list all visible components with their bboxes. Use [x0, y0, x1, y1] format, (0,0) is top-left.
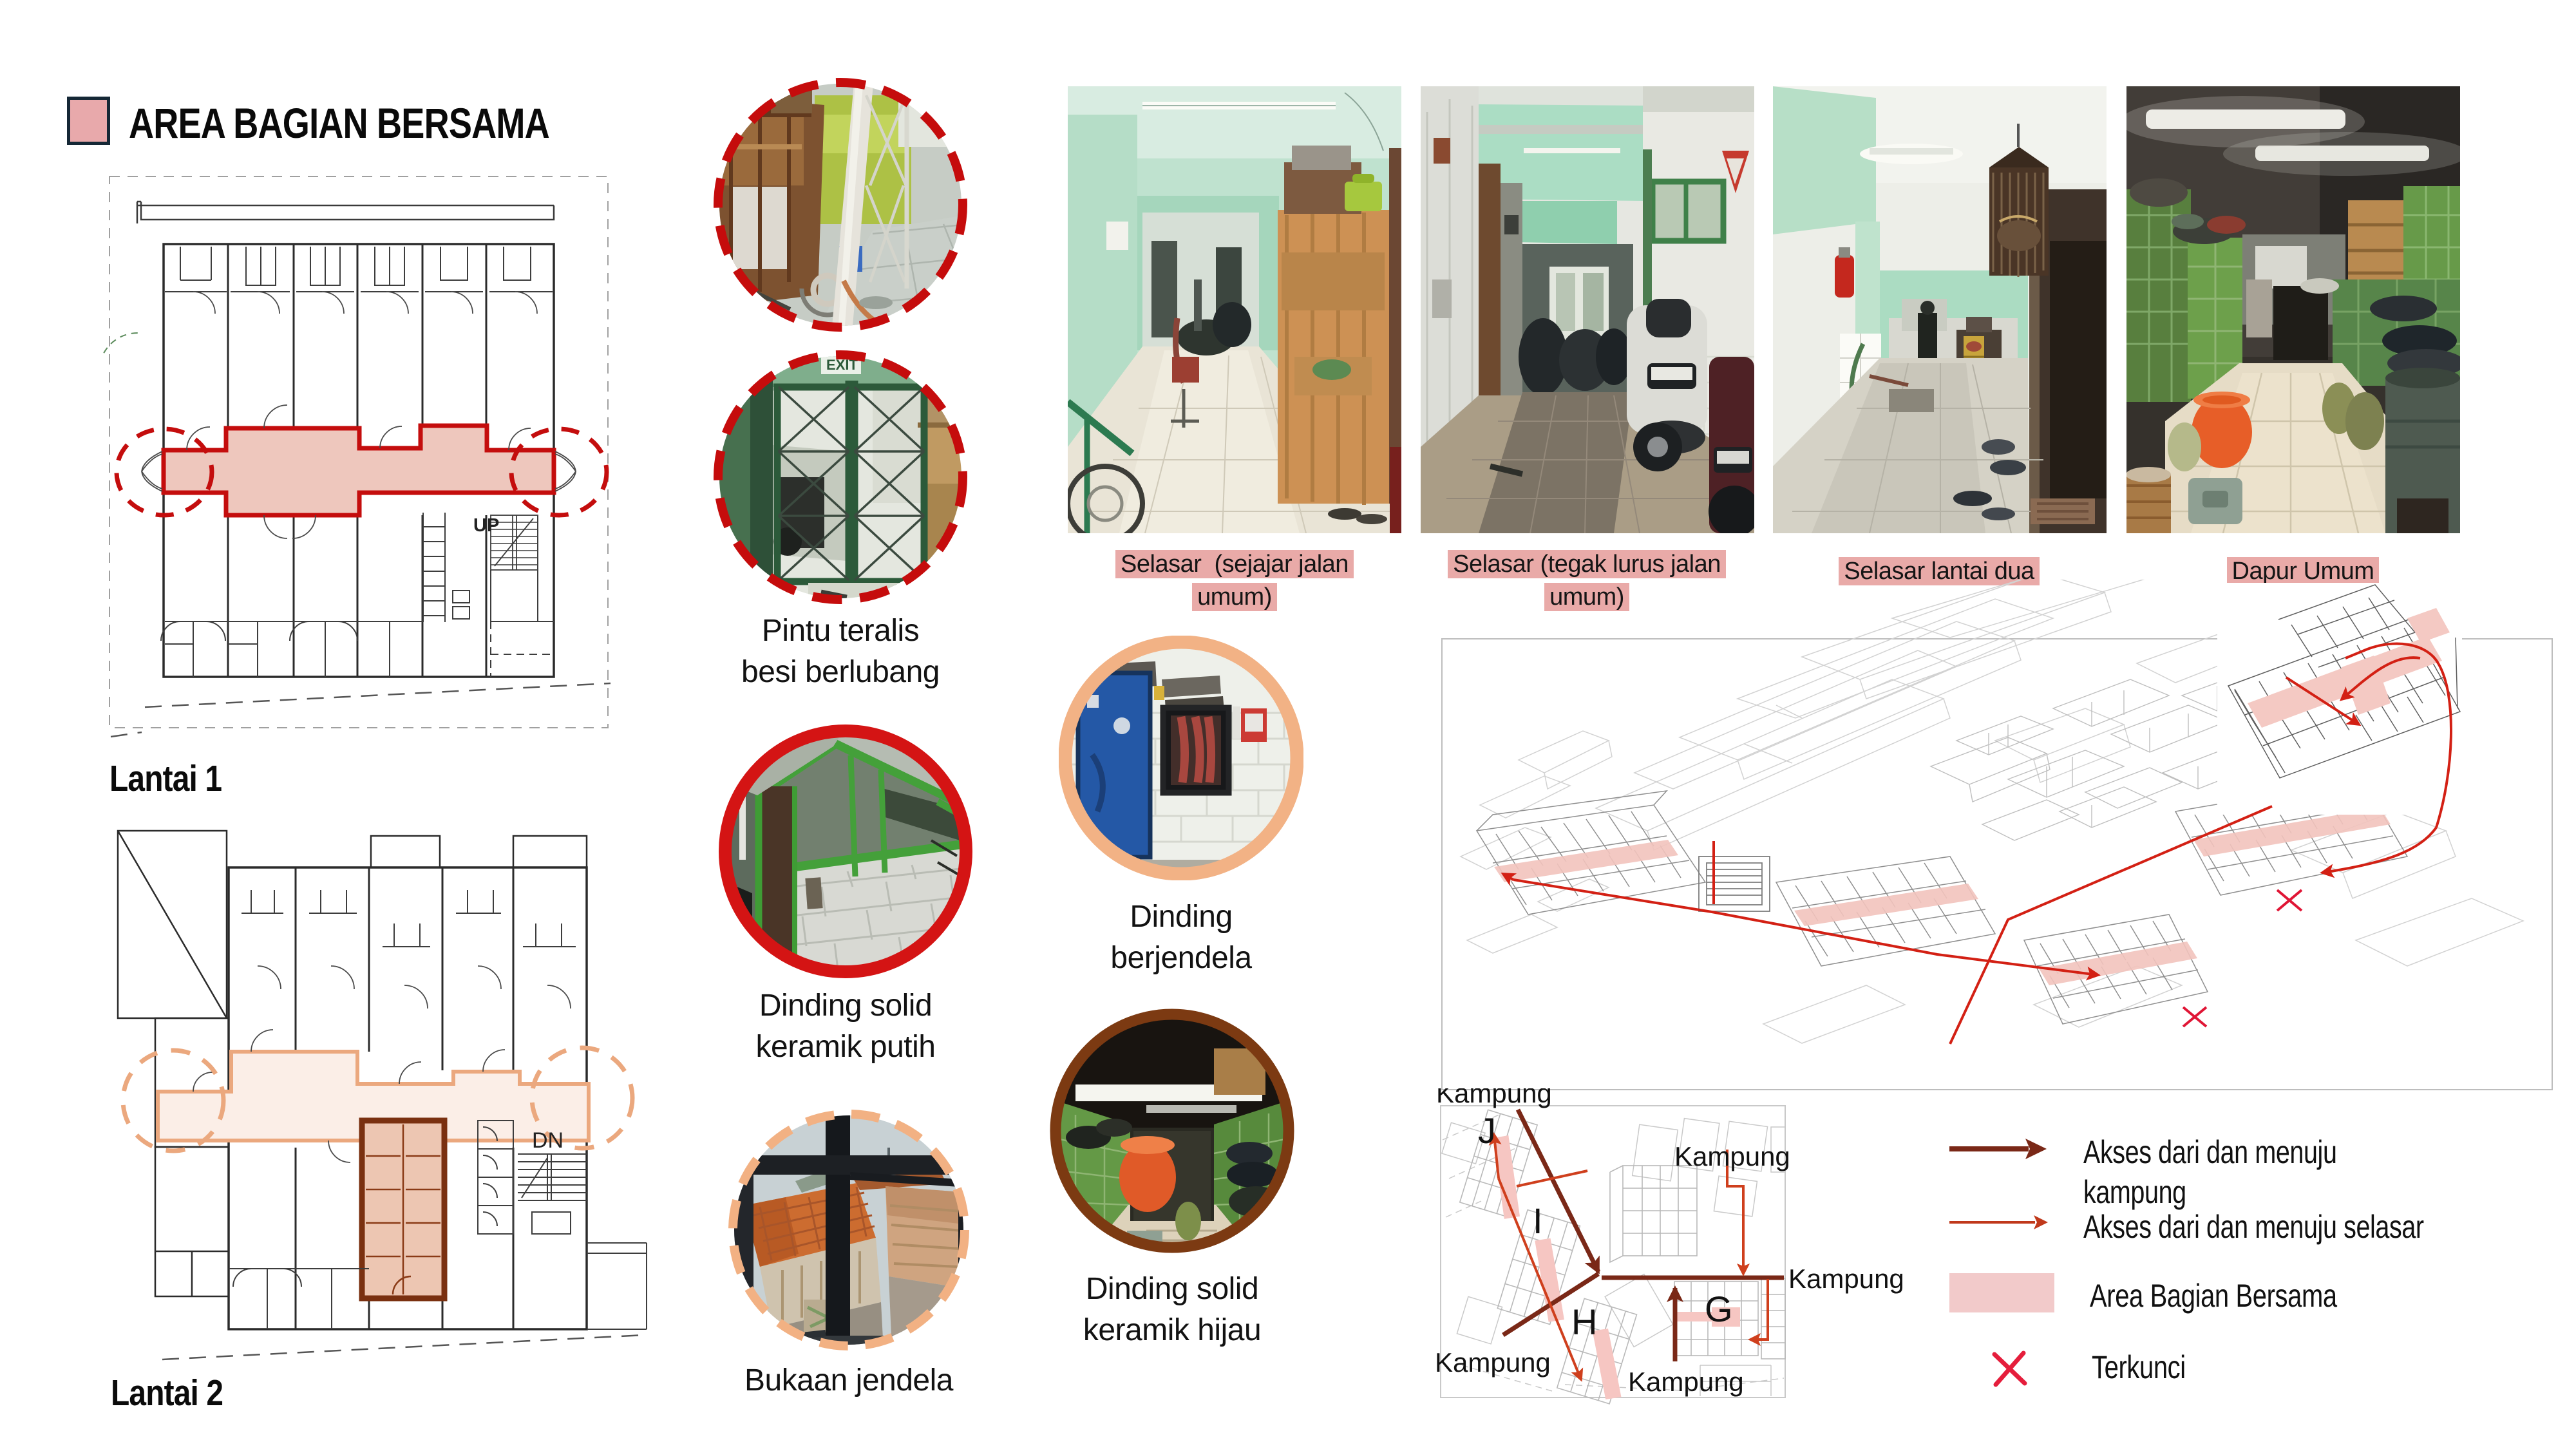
svg-text:Kampung: Kampung: [1628, 1367, 1744, 1397]
svg-text:DN: DN: [532, 1128, 563, 1153]
svg-text:UP: UP: [473, 515, 499, 536]
svg-text:G: G: [1705, 1289, 1733, 1329]
svg-text:J: J: [1478, 1110, 1496, 1151]
svg-text:H: H: [1571, 1302, 1597, 1342]
svg-text:Kampung: Kampung: [1435, 1347, 1551, 1378]
svg-text:I: I: [1533, 1200, 1543, 1241]
svg-text:Kampung: Kampung: [1436, 1088, 1552, 1108]
svg-text:Kampung: Kampung: [1674, 1141, 1790, 1171]
svg-text:Kampung: Kampung: [1788, 1264, 1904, 1294]
